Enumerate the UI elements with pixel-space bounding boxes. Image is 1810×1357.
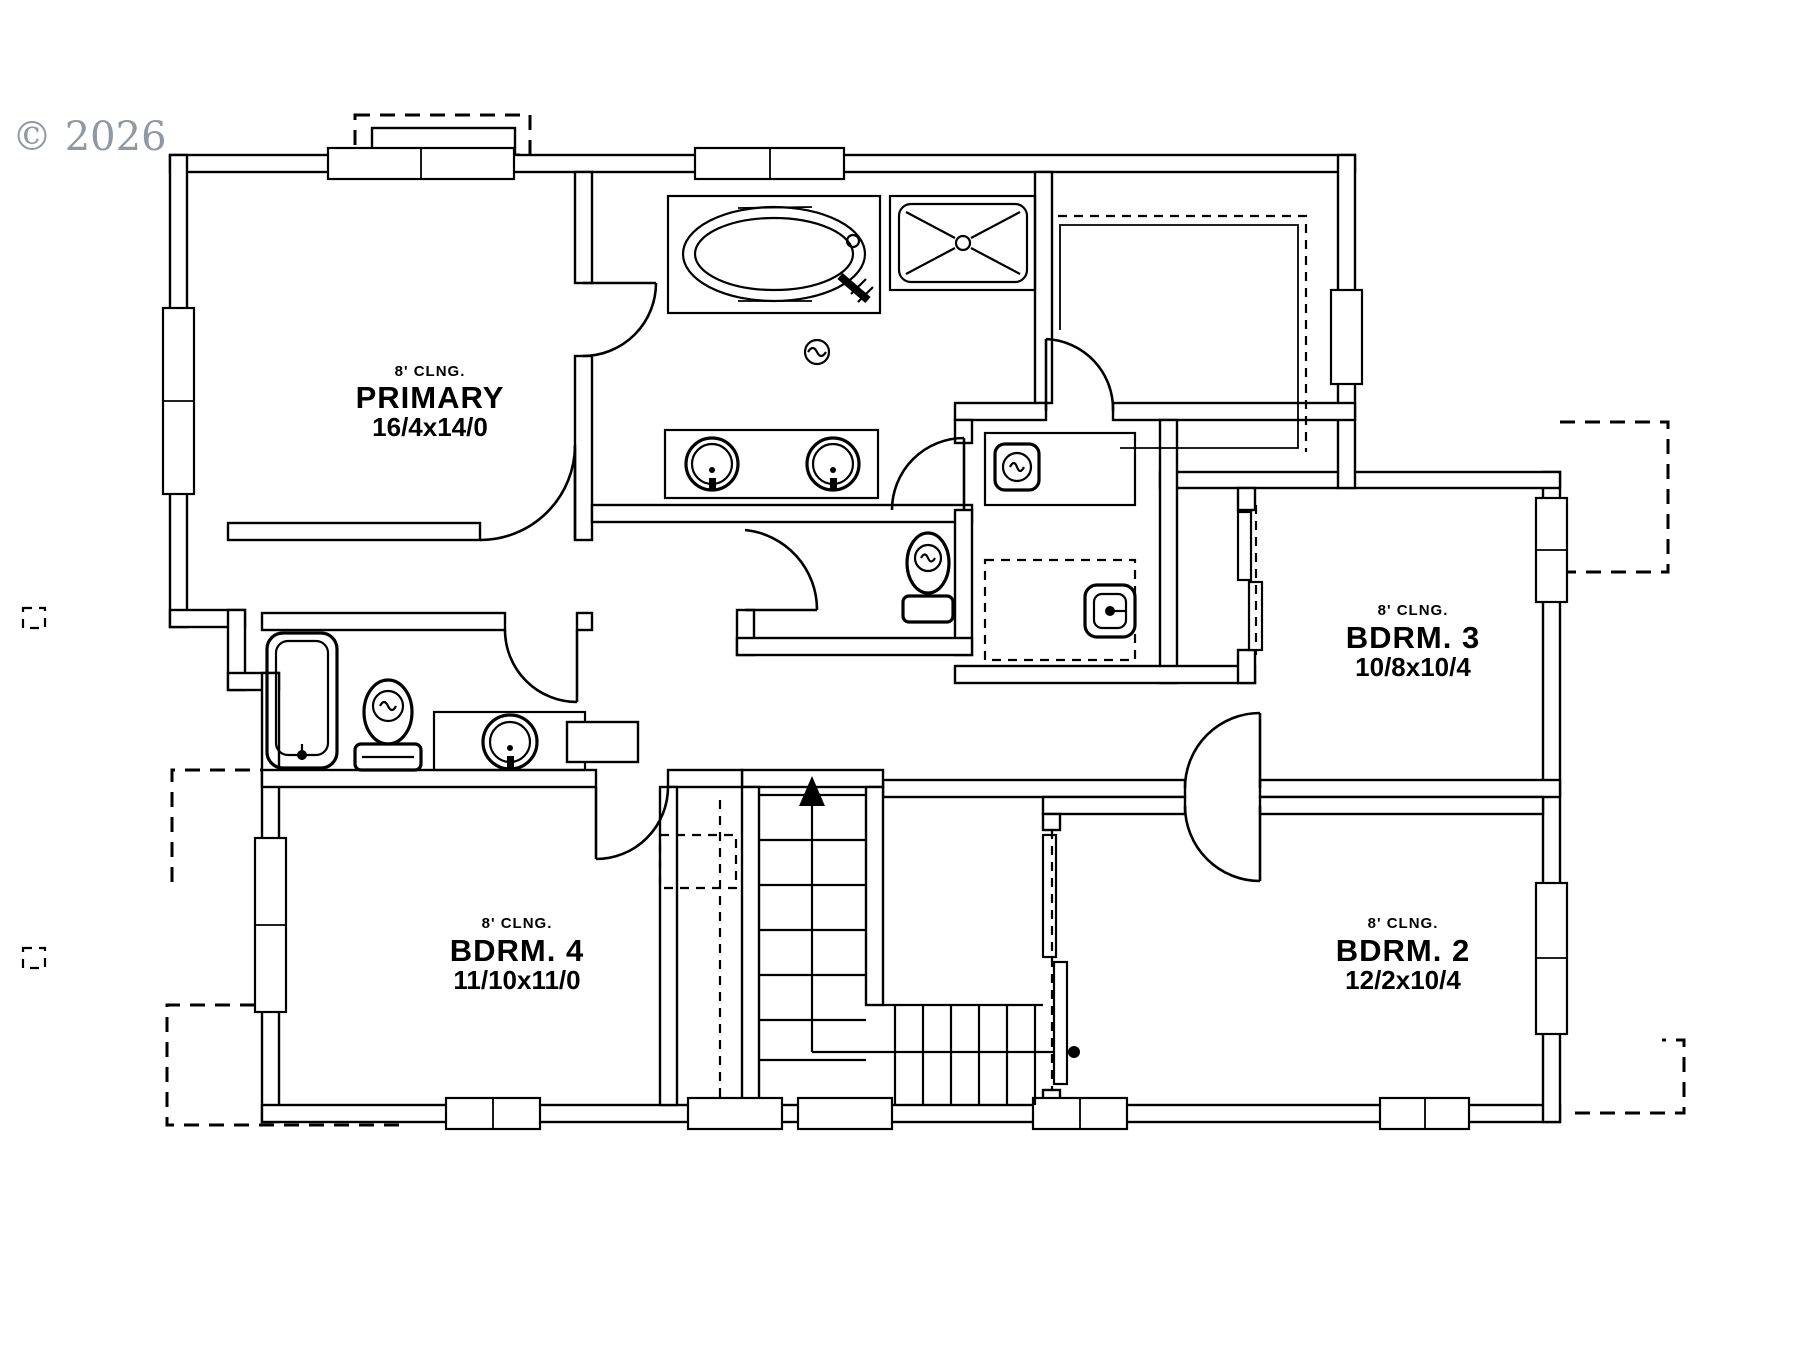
hall-bath xyxy=(267,633,585,770)
copyright-watermark: © 2026 xyxy=(12,114,167,160)
label-bdrm2: 8' CLNG. BDRM. 2 12/2x10/4 xyxy=(1336,915,1470,995)
right-deck-outline xyxy=(1560,422,1668,572)
bdrm3-closet-slider xyxy=(1238,505,1262,655)
window-bdrm2-right xyxy=(1536,883,1567,1034)
window-closet-right xyxy=(1331,290,1362,384)
deck-post-lower xyxy=(23,948,45,968)
walk-in-shower xyxy=(890,196,1035,290)
hall-bath-vanity xyxy=(434,712,585,770)
bdrm4-dims: 11/10x11/0 xyxy=(453,965,580,995)
label-bdrm3: 8' CLNG. BDRM. 3 10/8x10/4 xyxy=(1346,602,1480,682)
deck-post-upper xyxy=(23,608,45,628)
primary-ceiling: 8' CLNG. xyxy=(395,363,466,380)
bdrm3-ceiling: 8' CLNG. xyxy=(1378,602,1449,619)
bdrm4-ceiling: 8' CLNG. xyxy=(482,915,553,932)
floor-drain xyxy=(805,340,829,364)
linen-cabinet xyxy=(567,722,638,762)
window-stair-bottom-left xyxy=(688,1098,782,1129)
window-bath-top xyxy=(695,148,844,179)
window-bdrm4-left xyxy=(255,838,286,1012)
bottom-right-deck-outline xyxy=(1575,1040,1684,1113)
dryer xyxy=(985,560,1135,660)
door-laundry xyxy=(892,438,964,510)
door-bdrm3 xyxy=(1185,713,1260,788)
water-closet-toilet xyxy=(903,533,953,622)
door-hall-bath xyxy=(505,630,577,702)
door-primary-bath xyxy=(583,283,656,356)
label-bdrm4: 8' CLNG. BDRM. 4 11/10x11/0 xyxy=(450,915,584,995)
primary-dims: 16/4x14/0 xyxy=(372,412,488,442)
bdrm3-name: BDRM. 3 xyxy=(1346,620,1480,655)
soaking-tub xyxy=(668,196,880,313)
window-primary-left xyxy=(163,308,194,494)
door-primary xyxy=(480,445,575,540)
bdrm3-dims: 10/8x10/4 xyxy=(1355,652,1471,682)
door-water-closet xyxy=(745,530,817,610)
door-bdrm4 xyxy=(596,787,668,859)
bdrm4-name: BDRM. 4 xyxy=(450,933,584,968)
door-bdrm2 xyxy=(1185,806,1260,881)
label-primary: 8' CLNG. PRIMARY 16/4x14/0 xyxy=(356,363,505,442)
hall-bath-toilet xyxy=(355,680,421,770)
floor-plan-page: © 2026 8' CLNG. PRIMARY 16/4x14/0 8' CLN… xyxy=(0,0,1810,1357)
floor-plan-drawing: © 2026 8' CLNG. PRIMARY 16/4x14/0 8' CLN… xyxy=(0,0,1810,1357)
primary-name: PRIMARY xyxy=(356,380,505,415)
bdrm2-name: BDRM. 2 xyxy=(1336,933,1470,968)
double-vanity xyxy=(665,430,878,498)
door-walkin-closet xyxy=(1046,339,1113,411)
window-bdrm3-right xyxy=(1536,498,1567,602)
window-bdrm2-bottom xyxy=(1380,1098,1469,1129)
laundry xyxy=(985,433,1135,660)
window-primary-top xyxy=(328,148,514,179)
window-bdrm4-bottom xyxy=(446,1098,540,1129)
washer xyxy=(985,433,1135,505)
bdrm2-ceiling: 8' CLNG. xyxy=(1368,915,1439,932)
stairs-up-arrow xyxy=(799,776,825,1052)
bdrm2-dims: 12/2x10/4 xyxy=(1345,965,1461,995)
window-hall-bottom xyxy=(1033,1098,1127,1129)
window-stair-bottom-right xyxy=(798,1098,892,1129)
